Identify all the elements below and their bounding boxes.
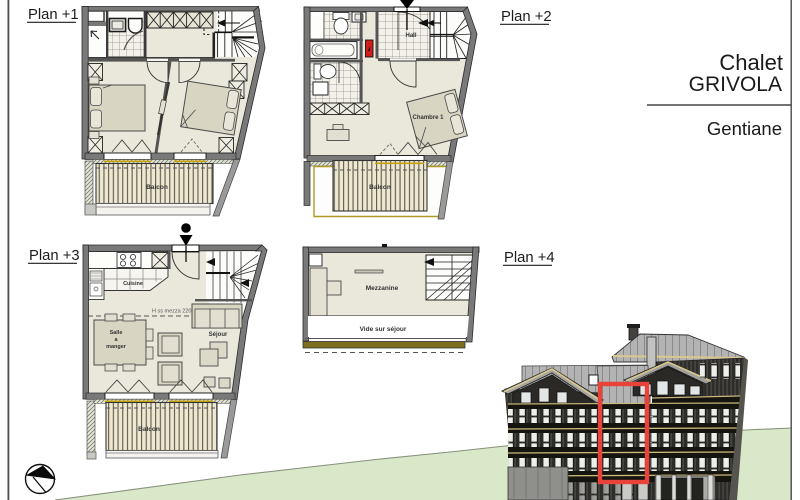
svg-text:Gentiane: Gentiane: [707, 118, 782, 139]
svg-text:Vide sur séjour: Vide sur séjour: [360, 326, 407, 333]
svg-text:Plan +1: Plan +1: [28, 7, 79, 23]
svg-text:GRIVOLA: GRIVOLA: [689, 73, 782, 96]
svg-text:manger: manger: [106, 344, 127, 350]
svg-text:Balcon: Balcon: [138, 426, 160, 433]
svg-text:Cuisine: Cuisine: [123, 281, 143, 287]
svg-text:Mezzanine: Mezzanine: [366, 285, 399, 292]
svg-text:H ss mezza 220: H ss mezza 220: [152, 309, 191, 315]
svg-text:Plan +3: Plan +3: [29, 248, 80, 264]
svg-text:Balcon: Balcon: [369, 184, 391, 191]
svg-text:Salle: Salle: [110, 330, 123, 336]
svg-text:Plan +4: Plan +4: [504, 250, 555, 266]
svg-text:Balcon: Balcon: [146, 184, 168, 191]
svg-text:Chalet: Chalet: [719, 50, 783, 75]
svg-text:Hall: Hall: [405, 33, 416, 39]
svg-text:Chambre 1: Chambre 1: [412, 115, 444, 121]
svg-text:Séjour: Séjour: [209, 332, 228, 338]
svg-text:Plan +2: Plan +2: [501, 9, 552, 25]
